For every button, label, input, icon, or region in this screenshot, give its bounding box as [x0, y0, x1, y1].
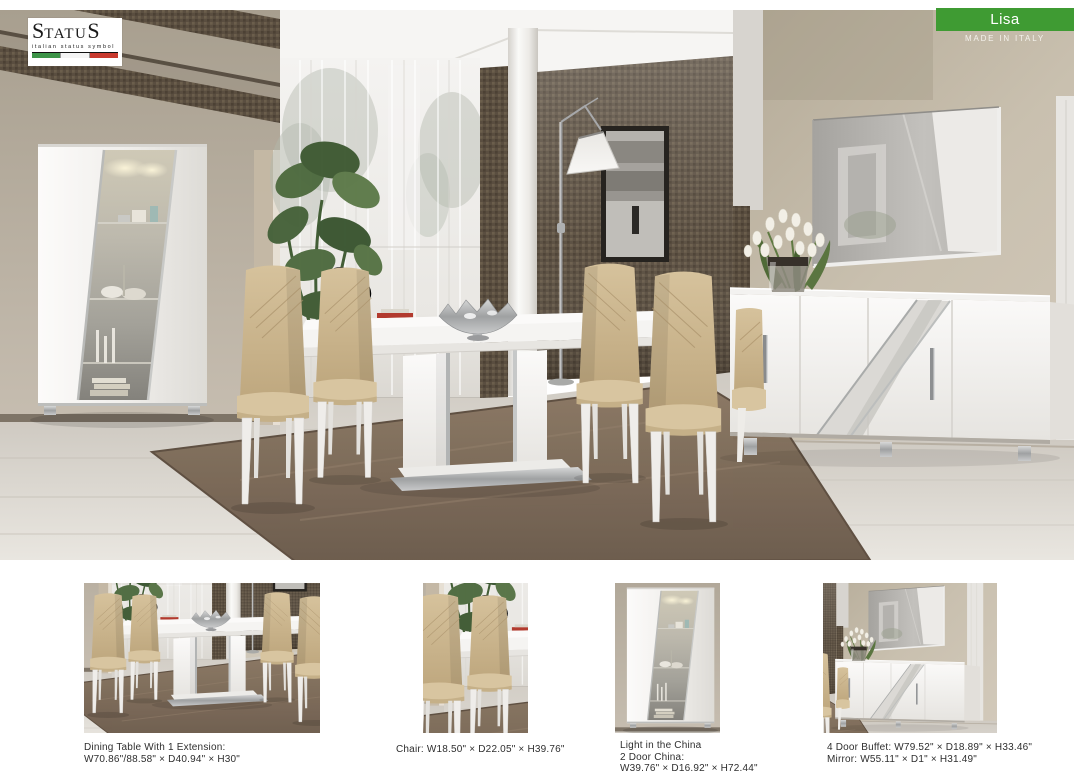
caption-line: W39.76" × D16.92" × H72.44": [620, 763, 840, 775]
caption-line: Dining Table With 1 Extension:: [84, 742, 344, 754]
caption-line: W70.86"/88.58" × D40.94" × H30": [84, 754, 344, 766]
italian-flag-icon: [32, 52, 118, 58]
brand-name: STATUS: [32, 21, 118, 44]
caption-line: 4 Door Buffet: W79.52" × D18.89" × H33.4…: [827, 742, 1067, 754]
brand-logo: STATUS italian status symbol: [28, 18, 122, 66]
catalog-page: STATUS italian status symbol Lisa MADE I…: [0, 0, 1074, 780]
caption-china: Light in the China 2 Door China: W39.76"…: [620, 740, 840, 775]
brand-tagline: italian status symbol: [32, 44, 118, 50]
caption-buffet-mirror: 4 Door Buffet: W79.52" × D18.89" × H33.4…: [827, 742, 1067, 765]
collection-badge: Lisa: [936, 8, 1074, 31]
brand-letters: TATU: [44, 26, 87, 42]
hero-room-photo: [0, 10, 1074, 560]
thumbnail-buffet-mirror[interactable]: [823, 583, 997, 733]
brand-letter: S: [32, 18, 44, 43]
caption-dining-table: Dining Table With 1 Extension: W70.86"/8…: [84, 742, 344, 765]
caption-line: Chair: W18.50" × D22.05" × H39.76": [396, 744, 656, 756]
caption-chair: Chair: W18.50" × D22.05" × H39.76": [396, 744, 656, 756]
thumbnail-china[interactable]: [615, 583, 720, 733]
caption-line: Light in the China: [620, 740, 840, 752]
thumbnail-chair[interactable]: [423, 583, 528, 733]
brand-letter: S: [87, 18, 99, 43]
room-scene: [0, 10, 1074, 560]
thumbnail-dining-table[interactable]: [84, 583, 320, 733]
caption-line: 2 Door China:: [620, 752, 840, 764]
caption-line: Mirror: W55.11" × D1" × H31.49": [827, 754, 1067, 766]
made-in-label: MADE IN ITALY: [936, 34, 1074, 43]
